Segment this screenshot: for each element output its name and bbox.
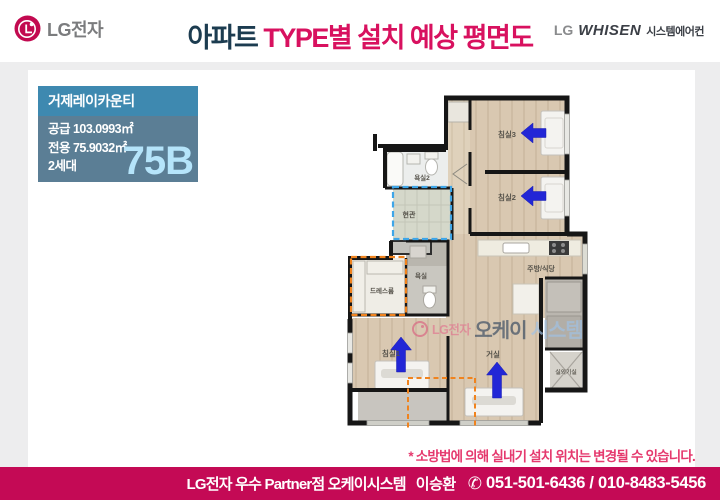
closet <box>448 102 470 122</box>
unit-info-box: 거제레이카운티 공급 103.0993㎡ 전용 75.9032㎡ 2세대 75B <box>38 86 198 182</box>
fridge <box>547 282 581 312</box>
lg-symbol-icon <box>14 15 41 42</box>
dining-table <box>513 284 539 314</box>
wardrobe-top <box>367 261 403 274</box>
sink2 <box>407 154 420 164</box>
toilet <box>424 292 436 308</box>
outdoor-unit-label: 실외기실 <box>555 368 576 376</box>
balcony-floor <box>358 390 448 421</box>
page-title-accent: TYPE별 설치 예상 평면도 <box>263 23 532 53</box>
living-label: 거실 <box>486 349 500 359</box>
phone-numbers: 051-501-6436 / 010-8483-5456 <box>486 474 706 493</box>
bath-sink <box>410 246 426 258</box>
dressroom-label: 드레스룸 <box>370 286 394 295</box>
whisen-suffix-label: 시스템에어컨 <box>646 23 704 39</box>
complex-name: 거제레이카운티 <box>38 86 198 116</box>
floor-plan-svg: 침실3 침실2 욕실2 현관 드레스룸 욕실 주방/식당 거실 침실1 실외기실 <box>345 78 595 434</box>
footer-bar: LG전자 우수 Partner점 오케이시스템 이승환 ✆ 051-501-64… <box>0 467 720 500</box>
bath-label: 욕실 <box>415 271 427 280</box>
watermark-lg-icon <box>412 321 428 337</box>
dealer-label: LG전자 우수 Partner점 오케이시스템 <box>187 473 406 494</box>
watermark-lg-text: LG전자 <box>432 319 470 338</box>
bathtub <box>387 152 403 186</box>
header-band: 아파트 TYPE별 설치 예상 평면도 LG전자 LG WHISEN 시스템에어… <box>0 0 720 62</box>
contact-name: 이승환 <box>416 473 456 494</box>
watermark-okay-text: 오케이 <box>474 314 526 343</box>
bedroom2-label: 침실2 <box>498 192 516 202</box>
watermark-system-text: 시스템 <box>531 314 583 343</box>
toilet2-tank <box>425 152 438 159</box>
bath2-label: 욕실2 <box>414 173 430 182</box>
page-title-dark: 아파트 <box>187 23 263 53</box>
lg-logo-label: LG전자 <box>47 16 103 42</box>
stove <box>549 241 569 255</box>
type-code: 75B <box>123 139 193 184</box>
floor-plan: 침실3 침실2 욕실2 현관 드레스룸 욕실 주방/식당 거실 침실1 실외기실 <box>345 78 595 434</box>
wardrobe-left <box>353 261 365 312</box>
phone-icon: ✆ <box>468 474 482 494</box>
kitchen-label: 주방/식당 <box>527 264 555 273</box>
supply-area: 공급 103.0993㎡ <box>48 120 198 139</box>
bedroom1-label: 침실1 <box>382 348 400 358</box>
toilet2 <box>426 159 438 175</box>
whisen-logo: LG WHISEN 시스템에어컨 <box>554 22 704 39</box>
bedroom3-label: 침실3 <box>498 129 516 139</box>
lg-logo: LG전자 <box>14 15 103 42</box>
kitchen-sink <box>503 243 529 253</box>
whisen-lg-label: LG <box>554 22 573 38</box>
watermark: LG전자 오케이 시스템 <box>412 314 583 343</box>
unit-info-body: 공급 103.0993㎡ 전용 75.9032㎡ 2세대 75B <box>38 116 198 182</box>
entrance-label: 현관 <box>403 210 416 219</box>
disclaimer-note: * 소방법에 의해 실내기 설치 위치는 변경될 수 있습니다. <box>408 445 695 465</box>
whisen-brand-label: WHISEN <box>578 22 641 39</box>
